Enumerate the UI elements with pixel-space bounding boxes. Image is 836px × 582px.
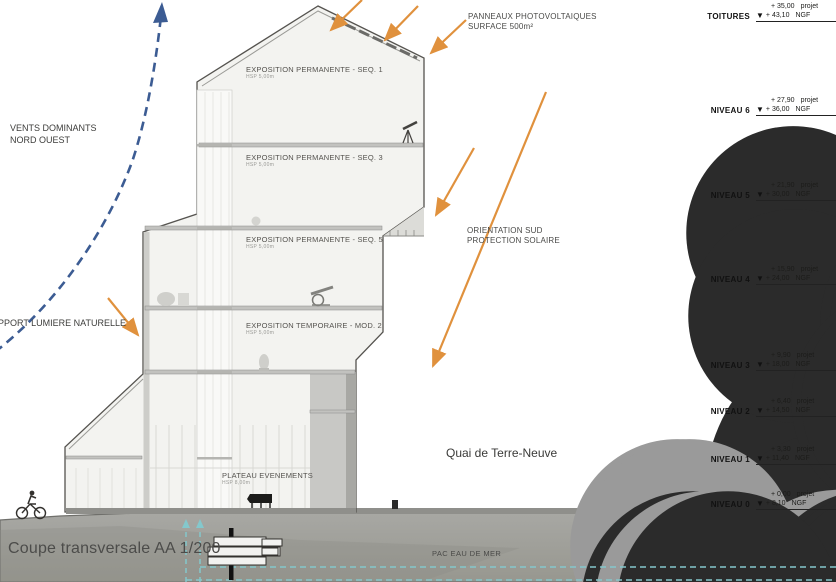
level-ngf-unit: NGF [795,454,810,463]
level-name: TOITURES [707,12,750,21]
sun-arrow-icon [385,6,418,40]
level-marker-icon: ▼ [756,500,764,508]
level-values: + 35,00projet ▼+ 43,10NGF [756,2,836,22]
level-ngf-value: + 14,50 [766,406,790,415]
annotation-panneaux-line2: SURFACE 500m² [468,22,597,32]
level-row-niveau1: NIVEAU 1 + 3,30projet ▼+ 11,40NGF [711,445,836,465]
level-values: + 6,40projet ▼+ 14,50NGF [756,397,836,417]
space-hsp: HSP 5,00m [246,74,383,81]
space-name: EXPOSITION PERMANENTE - SEQ. 3 [246,154,383,162]
level-ngf-unit: NGF [795,406,810,415]
space-name: EXPOSITION TEMPORAIRE - MOD. 2 [246,322,382,330]
space-hsp: HSP 5,00m [246,330,382,337]
level-values: + 21,90projet ▼+ 30,00NGF [756,181,836,201]
space-name: EXPOSITION PERMANENTE - SEQ. 1 [246,66,383,74]
level-ngf-unit: NGF [795,11,810,20]
space-label-seq1: EXPOSITION PERMANENTE - SEQ. 1 HSP 5,00m [246,66,383,81]
level-projet-unit: projet [801,96,819,105]
level-row-niveau5: NIVEAU 5 + 21,90projet ▼+ 30,00NGF [711,181,836,201]
level-name: NIVEAU 0 [711,500,750,509]
level-row-niveau2: NIVEAU 2 + 6,40projet ▼+ 14,50NGF [711,397,836,417]
annotation-panneaux: PANNEAUX PHOTOVOLTAIQUES SURFACE 500m² [468,12,597,32]
level-ngf-value: + 8,10 [766,499,786,508]
level-values: + 3,30projet ▼+ 11,40NGF [756,445,836,465]
level-projet-value: + 0,00 [771,490,791,499]
architectural-section-sheet: PANNEAUX PHOTOVOLTAIQUES SURFACE 500m² V… [0,0,836,582]
space-label-seq5: EXPOSITION PERMANENTE - SEQ. 5 HSP 5,00m [246,236,383,251]
space-hsp: HSP 5,00m [246,244,383,251]
level-marker-icon: ▼ [756,12,764,20]
level-projet-unit: projet [797,397,815,406]
drawing-title: Coupe transversale AA 1/200 [8,540,221,558]
space-name: EXPOSITION PERMANENTE - SEQ. 5 [246,236,383,244]
annotation-panneaux-line1: PANNEAUX PHOTOVOLTAIQUES [468,12,597,22]
space-label-seq3: EXPOSITION PERMANENTE - SEQ. 3 HSP 5,00m [246,154,383,169]
building-outline [65,6,424,512]
level-projet-unit: projet [801,265,819,274]
level-name: NIVEAU 1 [711,455,750,464]
level-projet-unit: projet [797,490,815,499]
level-ngf-value: + 24,00 [766,274,790,283]
level-values: + 0,00projet ▼+ 8,10NGF [756,490,836,510]
level-projet-value: + 35,00 [771,2,795,11]
level-row-niveau3: NIVEAU 3 + 9,90projet ▼+ 18,00NGF [711,351,836,371]
level-row-niveau4: NIVEAU 4 + 15,90projet ▼+ 24,00NGF [711,265,836,285]
pac-label: PAC EAU DE MER [432,549,501,558]
space-label-plateau: PLATEAU EVENEMENTS HSP 8,00m [222,472,313,487]
level-name: NIVEAU 4 [711,275,750,284]
level-values: + 9,90projet ▼+ 18,00NGF [756,351,836,371]
annotation-vents: VENTS DOMINANTS NORD OUEST [10,122,97,146]
sun-arrow-icon [431,20,466,53]
level-projet-value: + 9,90 [771,351,791,360]
cyclist-icon [17,491,46,519]
orientation-arrow-icon [436,148,474,215]
level-ngf-unit: NGF [795,274,810,283]
quai-label: Quai de Terre-Neuve [446,446,557,460]
level-ngf-value: + 11,40 [766,454,789,463]
luggage [392,500,398,509]
space-hsp: HSP 5,00m [246,162,383,169]
level-ngf-unit: NGF [795,105,810,114]
level-projet-value: + 6,40 [771,397,791,406]
level-row-toitures: TOITURES + 35,00projet ▼+ 43,10NGF [707,2,836,22]
annotation-apport-lumiere: PPORT LUMIERE NATURELLE [0,317,126,329]
level-ngf-value: + 30,00 [766,190,790,199]
level-name: NIVEAU 6 [711,106,750,115]
level-name: NIVEAU 5 [711,191,750,200]
level-ngf-value: + 43,10 [766,11,790,20]
annotation-orientation-line1: ORIENTATION SUD [467,226,560,236]
level-marker-icon: ▼ [756,275,764,283]
level-name: NIVEAU 2 [711,407,750,416]
level-projet-unit: projet [797,445,815,454]
space-hsp: HSP 8,00m [222,480,313,487]
stair-core [197,90,232,510]
space-label-mod2: EXPOSITION TEMPORAIRE - MOD. 2 HSP 5,00m [246,322,382,337]
level-marker-icon: ▼ [756,407,764,415]
level-ngf-unit: NGF [792,499,807,508]
level-projet-value: + 3,30 [771,445,791,454]
level-projet-value: + 27,90 [771,96,795,105]
level-projet-unit: projet [801,181,819,190]
annotation-orientation-line2: PROTECTION SOLAIRE [467,236,560,246]
level-values: + 15,90projet ▼+ 24,00NGF [756,265,836,285]
level-projet-value: + 15,90 [771,265,795,274]
level-marker-icon: ▼ [756,361,764,369]
level-marker-icon: ▼ [756,455,764,463]
level-ngf-unit: NGF [795,190,810,199]
level-ngf-value: + 36,00 [766,105,790,114]
level-projet-unit: projet [801,2,819,11]
level-row-niveau6: NIVEAU 6 + 27,90projet ▼+ 36,00NGF [711,96,836,116]
building-section [65,6,424,514]
level-ngf-unit: NGF [795,360,810,369]
level-projet-value: + 21,90 [771,181,795,190]
ground-floor-slab [66,508,356,514]
annotation-vents-line1: VENTS DOMINANTS [10,122,97,134]
level-marker-icon: ▼ [756,191,764,199]
level-ngf-value: + 18,00 [766,360,790,369]
level-name: NIVEAU 3 [711,361,750,370]
level-projet-unit: projet [797,351,815,360]
annotation-orientation: ORIENTATION SUD PROTECTION SOLAIRE [467,226,560,246]
level-row-niveau0: NIVEAU 0 + 0,00projet ▼+ 8,10NGF [711,490,836,510]
space-name: PLATEAU EVENEMENTS [222,472,313,480]
level-marker-icon: ▼ [756,106,764,114]
annotation-vents-line2: NORD OUEST [10,134,97,146]
level-values: + 27,90projet ▼+ 36,00NGF [756,96,836,116]
